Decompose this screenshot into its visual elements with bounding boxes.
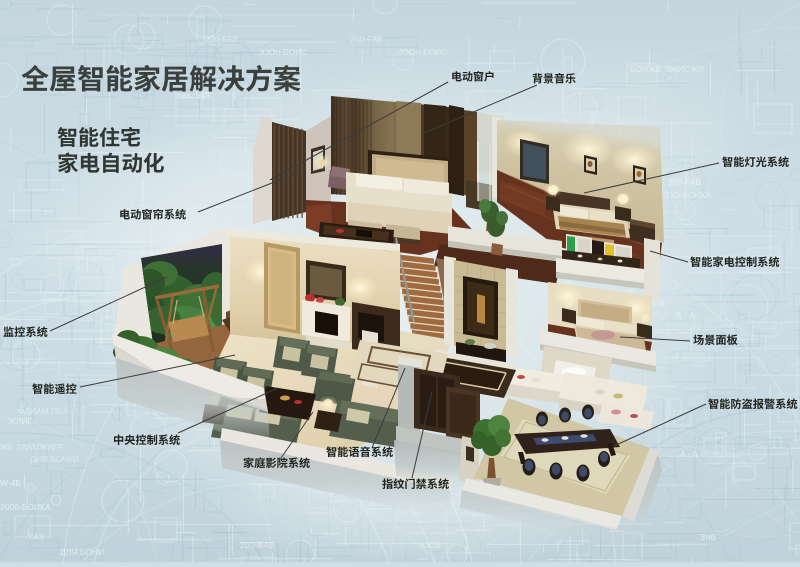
svg-text:2000-БОИКА: 2000-БОИКА bbox=[0, 502, 51, 512]
svg-text:W-4Б: W-4Б bbox=[0, 478, 21, 488]
svg-text:ЖЛИГ-: ЖЛИГ- bbox=[8, 416, 35, 426]
svg-text:ЗЧБ: ЗЧБ bbox=[700, 532, 717, 542]
svg-text:200-FAB: 200-FAB bbox=[205, 34, 238, 44]
svg-text:ДЛЯ БОНИ: ДЛЯ БОНИ bbox=[60, 547, 104, 557]
svg-text:ЖЕ ЗЛАМЖИГР: ЖЕ ЗЛАМЖИГР bbox=[0, 442, 64, 452]
svg-text:A - A: A - A bbox=[680, 449, 698, 459]
svg-text:ТАЗ: ТАЗ bbox=[28, 532, 44, 542]
svg-text:ФДИАМ ПЕА: ФДИАМ ПЕА bbox=[18, 406, 69, 416]
svg-text:ДИЯ БОЧКИ: ДИЯ БОЧКИ bbox=[30, 454, 79, 464]
